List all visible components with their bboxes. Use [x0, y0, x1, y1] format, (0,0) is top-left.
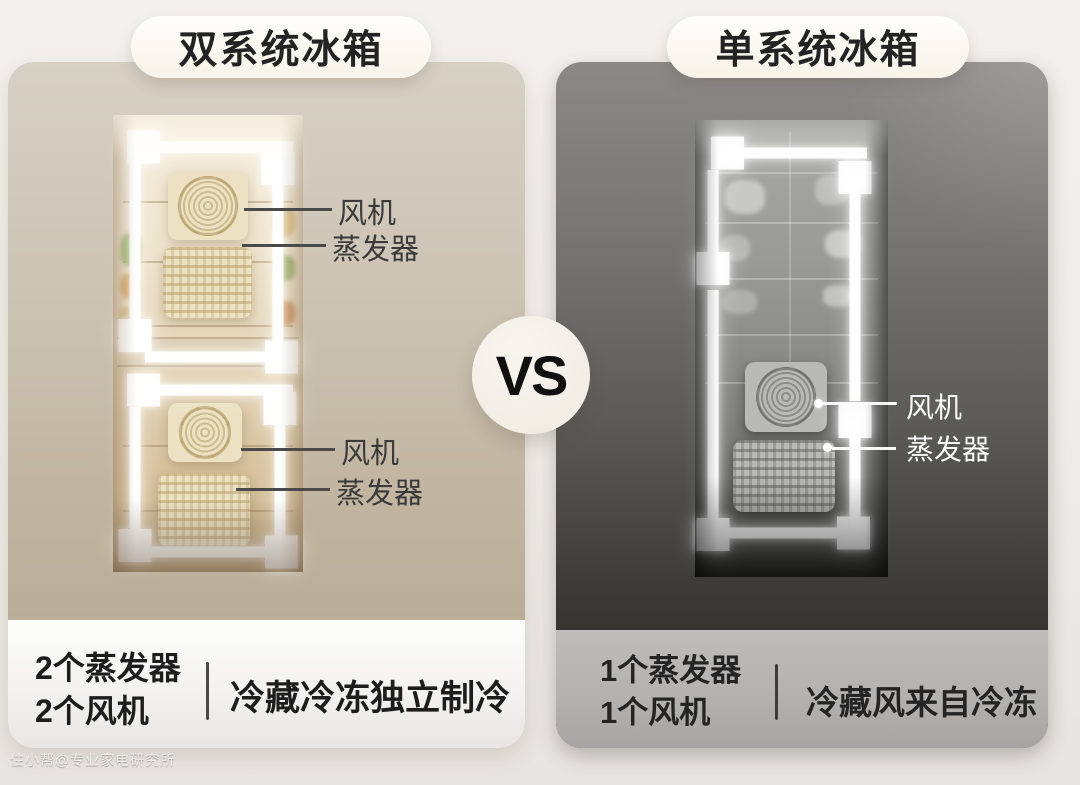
leader-line-fan-top — [244, 208, 332, 211]
single-system-panel: 风机 蒸发器 1个蒸发器 1个风机 冷藏风来自冷冻 — [556, 62, 1048, 748]
single-system-feature: 冷藏风来自冷冻 — [806, 676, 1037, 724]
callout-evaporator-top: 蒸发器 — [332, 226, 419, 268]
watermark: 住小帮@专业家电研究所 — [10, 750, 175, 770]
single-system-fridge-photo — [695, 120, 888, 577]
vs-badge: VS — [472, 316, 590, 434]
leader-line-fan-bottom — [241, 448, 335, 451]
dual-system-panel: 风机 蒸发器 风机 蒸发器 2个蒸发器 2个风机 冷藏冷冻独立制冷 — [8, 62, 525, 748]
airflow-arrows-dual — [113, 115, 303, 572]
leader-line-fan — [823, 402, 897, 405]
summary-divider — [775, 664, 778, 720]
leader-line-evaporator-top — [242, 244, 326, 247]
callout-dot-fan — [814, 399, 823, 408]
callout-dot-evaporator — [823, 443, 832, 452]
dual-system-feature: 冷藏冷冻独立制冷 — [230, 670, 510, 721]
airflow-arrows-single — [695, 120, 888, 577]
leader-line-evaporator-bottom — [236, 488, 330, 491]
callout-fan-bottom: 风机 — [341, 430, 399, 472]
leader-line-evaporator — [832, 447, 896, 450]
summary-divider — [206, 662, 209, 720]
callout-evaporator-bottom: 蒸发器 — [336, 470, 423, 512]
callout-fan: 风机 — [906, 386, 962, 426]
count-fans: 2个风机 — [35, 690, 181, 733]
single-system-counts: 1个蒸发器 1个风机 — [600, 650, 741, 734]
count-evaporators: 2个蒸发器 — [35, 647, 181, 690]
single-system-title: 单系统冰箱 — [667, 16, 969, 78]
dual-system-counts: 2个蒸发器 2个风机 — [35, 647, 181, 733]
dual-system-title: 双系统冰箱 — [131, 16, 431, 78]
count-fans: 1个风机 — [600, 692, 741, 734]
callout-evaporator: 蒸发器 — [906, 428, 990, 468]
count-evaporators: 1个蒸发器 — [600, 650, 741, 692]
dual-system-fridge-photo — [113, 115, 303, 572]
fridge-comparison-infographic: 风机 蒸发器 风机 蒸发器 2个蒸发器 2个风机 冷藏冷冻独立制冷 — [0, 0, 1080, 785]
